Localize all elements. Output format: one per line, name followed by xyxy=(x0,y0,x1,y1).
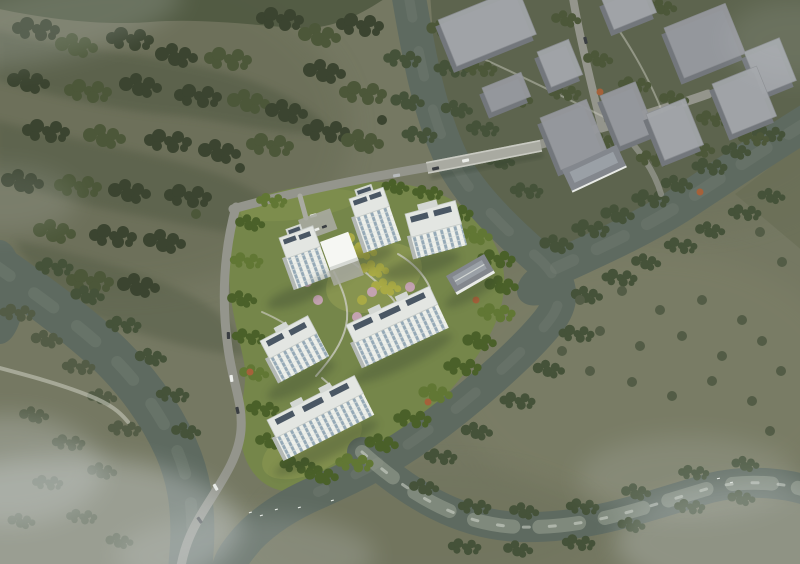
tree-red xyxy=(425,399,432,406)
car xyxy=(227,332,230,339)
tree xyxy=(557,346,567,356)
tree xyxy=(755,227,765,237)
tree xyxy=(757,336,767,346)
tree xyxy=(191,209,201,219)
aerial-rendering xyxy=(0,0,800,564)
tree xyxy=(717,351,727,361)
tree xyxy=(765,426,775,436)
tree xyxy=(235,163,245,173)
tree xyxy=(667,391,677,401)
tree xyxy=(377,115,387,125)
tree-red xyxy=(597,89,604,96)
tree xyxy=(707,376,717,386)
tree xyxy=(585,366,595,376)
tree-red xyxy=(697,189,704,196)
fog-wisp xyxy=(578,436,798,520)
tree xyxy=(697,295,707,305)
tree xyxy=(617,286,627,296)
masterplan-svg xyxy=(0,0,800,564)
tree xyxy=(777,257,787,267)
tree xyxy=(737,315,747,325)
tree xyxy=(635,341,645,351)
tree-red xyxy=(247,369,254,376)
tree-yellow xyxy=(357,295,367,305)
tree-pink xyxy=(367,287,377,297)
tree-pink xyxy=(405,282,415,292)
tree xyxy=(776,366,786,376)
tree xyxy=(677,331,687,341)
tree xyxy=(575,295,585,305)
tree xyxy=(655,305,665,315)
tree xyxy=(627,377,637,387)
tree xyxy=(747,396,757,406)
tree xyxy=(595,326,605,336)
